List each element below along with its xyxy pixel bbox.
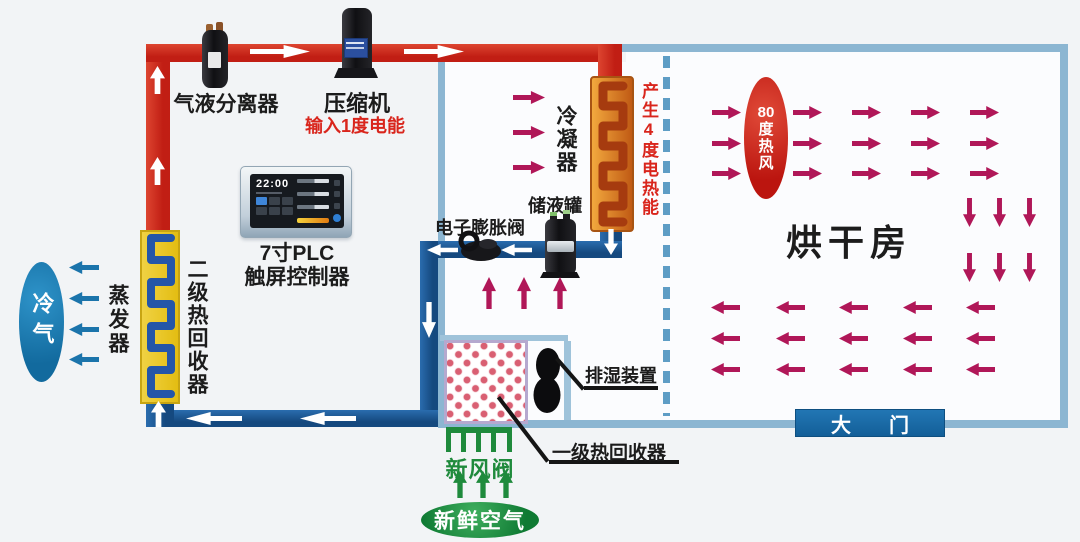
hot-air-flow-arrow [966, 363, 995, 376]
hot-air-flow-arrow [852, 137, 881, 150]
hot-air-flow-arrow [712, 106, 741, 119]
condenser-heat-arrow [513, 91, 545, 104]
liquid-refrigerant-flow-arrow [422, 302, 436, 338]
hot-refrigerant-flow-arrow [150, 66, 165, 94]
fresh-air-in-arrow [453, 471, 467, 498]
hot-air-flow-arrow [903, 301, 932, 314]
hot-air-flow-arrow [711, 332, 740, 345]
liquid-refrigerant-flow-arrow [151, 401, 166, 427]
hot-air-flow-arrow [911, 167, 940, 180]
hot-air-flow-arrow [1023, 198, 1036, 227]
hot-air-flow-arrow [970, 137, 999, 150]
hot-air-flow-arrow [711, 301, 740, 314]
hot-air-flow-arrow [852, 167, 881, 180]
hot-air-flow-arrow [970, 167, 999, 180]
heat-pump-dryer-diagram: 气液分离器 压缩机 输入1度电能 22:00 [0, 0, 1080, 542]
fresh-air-in-arrow [476, 471, 490, 498]
hot-air-flow-arrow [963, 198, 976, 227]
hot-refrigerant-flow-arrow [250, 45, 310, 58]
cold-air-out-arrow [69, 292, 99, 305]
liquid-refrigerant-flow-arrow [604, 229, 618, 255]
hot-air-flow-arrow [903, 332, 932, 345]
hot-air-flow-arrow [970, 106, 999, 119]
hot-air-flow-arrow [776, 332, 805, 345]
hot-air-flow-arrow [839, 363, 868, 376]
hot-air-flow-arrow [711, 363, 740, 376]
cold-air-out-arrow [69, 323, 99, 336]
cold-air-out-arrow [69, 353, 99, 366]
cold-air-out-arrow [69, 261, 99, 274]
hot-air-flow-arrow [911, 106, 940, 119]
liquid-refrigerant-flow-arrow [186, 412, 242, 425]
hot-air-flow-arrow [993, 198, 1006, 227]
liquid-refrigerant-flow-arrow [501, 244, 532, 256]
hot-air-flow-arrow [793, 106, 822, 119]
hot-air-flow-arrow [966, 332, 995, 345]
hot-air-flow-arrow [793, 137, 822, 150]
hot-air-flow-arrow [776, 301, 805, 314]
hot-air-flow-arrow [993, 253, 1006, 282]
hot-air-flow-arrow [712, 137, 741, 150]
hot-air-flow-arrow [966, 301, 995, 314]
hot-refrigerant-flow-arrow [150, 157, 165, 185]
hot-air-flow-arrow [911, 137, 940, 150]
hot-air-flow-arrow [839, 332, 868, 345]
fresh-air-in-arrow [499, 471, 513, 498]
hot-air-flow-arrow [963, 253, 976, 282]
hot-air-flow-arrow [1023, 253, 1036, 282]
hot-air-flow-arrow [903, 363, 932, 376]
liquid-refrigerant-flow-arrow [300, 412, 356, 425]
recovered-heat-arrow [482, 277, 496, 309]
hot-air-flow-arrow [793, 167, 822, 180]
hot-air-flow-arrow [776, 363, 805, 376]
hot-air-flow-arrow [839, 301, 868, 314]
condenser-heat-arrow [513, 161, 545, 174]
arrow-layer [0, 0, 1080, 542]
liquid-refrigerant-flow-arrow [427, 244, 458, 256]
recovered-heat-arrow [553, 277, 567, 309]
hot-refrigerant-flow-arrow [404, 45, 464, 58]
recovered-heat-arrow [517, 277, 531, 309]
hot-air-flow-arrow [712, 167, 741, 180]
hot-air-flow-arrow [852, 106, 881, 119]
condenser-heat-arrow [513, 126, 545, 139]
